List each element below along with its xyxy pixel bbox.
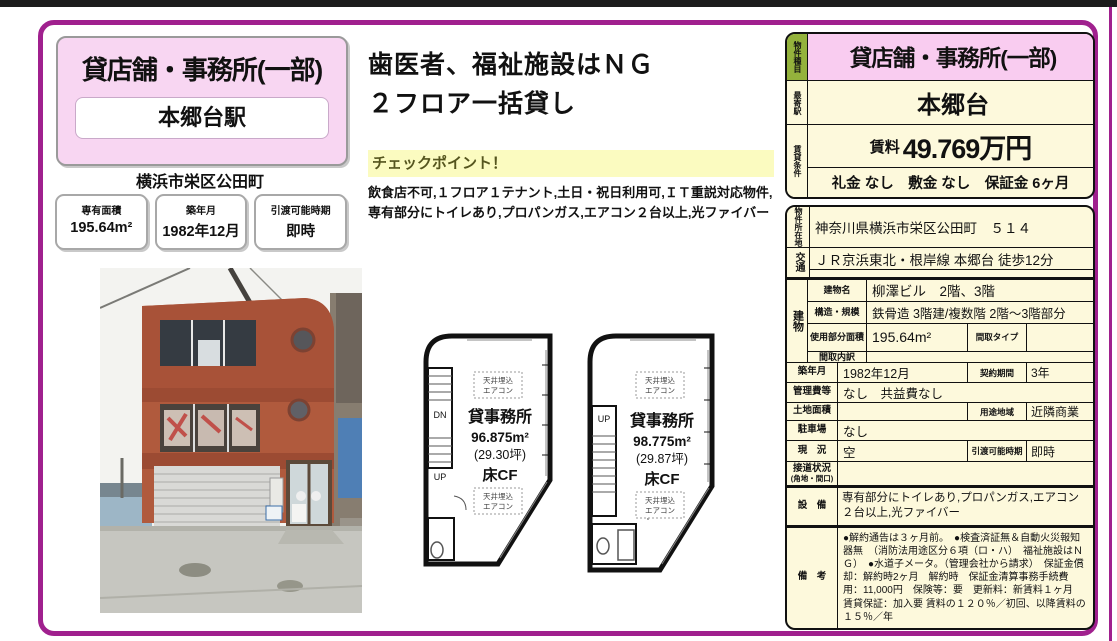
row-plan-detail: 間取内訳 bbox=[808, 351, 1093, 363]
rent-label: 賃料 bbox=[870, 136, 900, 157]
row-equipment: 設 備 専有部分にトイレあり,プロパンガス,エアコン２台以上,光ファイバー bbox=[787, 485, 1093, 525]
transport-value: ＪＲ京浜東北・根岸線 本郷台 徒歩12分 bbox=[810, 248, 1093, 270]
top-black-strip bbox=[0, 0, 1117, 7]
status-label: 現 況 bbox=[787, 441, 838, 461]
station-box: 本郷台駅 bbox=[75, 97, 329, 139]
summary-station-label: 最寄駅 bbox=[787, 81, 808, 124]
notes-label: 備 考 bbox=[787, 528, 838, 628]
row-area: 使用部分面積 195.64m² 間取タイプ bbox=[808, 323, 1093, 351]
land-value bbox=[838, 403, 967, 420]
plan-type-value bbox=[1027, 324, 1093, 351]
aircon-top-line2: エアコン bbox=[483, 386, 513, 395]
address-line: 横浜市栄区公田町 bbox=[56, 168, 344, 192]
aircon-bottom-line1: 天井埋込 bbox=[645, 495, 675, 505]
mgmt-value: なし 共益費なし bbox=[838, 383, 1093, 402]
stair-label-top: UP bbox=[598, 414, 611, 424]
area-value: 195.64m² bbox=[867, 324, 967, 351]
built-label: 築年月 bbox=[787, 363, 838, 382]
headline-line2: ２フロア一括貸し bbox=[368, 85, 778, 124]
row-structure: 構造・規模 鉄骨造 3階建/複数階 2階～3階部分 bbox=[808, 301, 1093, 323]
summary-table: 物件種目 貸店舗・事務所(一部) 最寄駅 本郷台 賃貸条件 賃料 49.769万… bbox=[785, 32, 1095, 199]
headline-line1: 歯医者、福祉施設はＮＧ bbox=[368, 46, 778, 85]
stat-built: 築年月 1982年12月 bbox=[155, 194, 248, 250]
plan-detail-label: 間取内訳 bbox=[808, 352, 867, 363]
parking-label: 駐車場 bbox=[787, 421, 838, 440]
stat-area-label: 専有面積 bbox=[57, 202, 146, 217]
stat-handover-label: 引渡可能時期 bbox=[256, 202, 345, 217]
plan-use: 貸事務所 bbox=[467, 407, 532, 426]
transport-label: 交通 bbox=[787, 248, 810, 277]
right-purple-line bbox=[1109, 7, 1112, 641]
aircon-bottom-line2: エアコン bbox=[483, 502, 513, 511]
stat-handover: 引渡可能時期 即時 bbox=[254, 194, 347, 250]
building-name-label: 建物名 bbox=[808, 280, 867, 301]
zoning-value: 近隣商業 bbox=[1027, 403, 1093, 420]
summary-row-station: 最寄駅 本郷台 bbox=[787, 80, 1093, 124]
stair-label-bottom: UP bbox=[434, 472, 447, 482]
flyer-page: 貸店舗・事務所(一部) 本郷台駅 横浜市栄区公田町 専有面積 195.64m² … bbox=[0, 0, 1117, 641]
aircon-bottom-line2: エアコン bbox=[645, 506, 675, 515]
plan-floor: 床CF bbox=[645, 470, 680, 488]
handover-label: 引渡可能時期 bbox=[967, 441, 1027, 461]
mgmt-label: 管理費等 bbox=[787, 383, 838, 402]
summary-row-terms: 賃貸条件 賃料 49.769万円 礼金 なし 敷金 なし 保証金 6ヶ月 bbox=[787, 124, 1093, 197]
checkpoint-title: チェックポイント！ bbox=[368, 150, 774, 177]
handover-value: 即時 bbox=[1027, 441, 1093, 461]
stat-area: 専有面積 195.64m² bbox=[55, 194, 148, 250]
summary-station-value: 本郷台 bbox=[808, 81, 1093, 124]
category-box: 貸店舗・事務所(一部) 本郷台駅 bbox=[56, 36, 348, 166]
row-transport: 交通 ＪＲ京浜東北・根岸線 本郷台 徒歩12分 bbox=[787, 247, 1093, 277]
detail-table: 物件所在地 神奈川県横浜市栄区公田町 ５１４ 交通 ＪＲ京浜東北・根岸線 本郷台… bbox=[785, 205, 1095, 630]
row-land: 土地面積 用途地域 近隣商業 bbox=[787, 402, 1093, 420]
status-value: 空 bbox=[838, 441, 967, 461]
zoning-label: 用途地域 bbox=[967, 403, 1027, 420]
row-mgmt: 管理費等 なし 共益費なし bbox=[787, 382, 1093, 402]
plan-type-label: 間取タイプ bbox=[967, 324, 1027, 351]
floorplan-2f: DN UP 天井埋込 エアコン 天井埋込 エアコン 貸事務所 96.875m² … bbox=[412, 310, 566, 576]
building-label: 建物 bbox=[787, 280, 808, 363]
location-value: 神奈川県横浜市栄区公田町 ５１４ bbox=[810, 207, 1093, 247]
plan-floor: 床CF bbox=[483, 466, 518, 484]
structure-value: 鉄骨造 3階建/複数階 2階～3階部分 bbox=[867, 302, 1093, 323]
floorplan-3f: UP 天井埋込 エアコン 天井埋込 エアコン 貸事務所 98.775m² (29… bbox=[578, 310, 728, 582]
road-value bbox=[838, 462, 1093, 484]
contract-label: 契約期間 bbox=[967, 363, 1027, 382]
area-label: 使用部分面積 bbox=[808, 324, 867, 351]
land-label: 土地面積 bbox=[787, 403, 838, 420]
plan-tsubo: (29.87坪) bbox=[636, 452, 688, 466]
stat-boxes: 専有面積 195.64m² 築年月 1982年12月 引渡可能時期 即時 bbox=[55, 194, 347, 250]
location-label: 物件所在地 bbox=[787, 207, 810, 247]
rent-value: 49.769万円 bbox=[903, 127, 1032, 166]
building-name-value: 柳澤ビル 2階、3階 bbox=[867, 280, 1093, 301]
rent-row: 賃料 49.769万円 bbox=[808, 125, 1093, 168]
row-road: 接道状況 (角地・間口) bbox=[787, 461, 1093, 484]
headline: 歯医者、福祉施設はＮＧ ２フロア一括貸し bbox=[368, 46, 778, 124]
road-label: 接道状況 (角地・間口) bbox=[787, 462, 838, 484]
transport-value2 bbox=[810, 270, 1093, 277]
aircon-top-line1: 天井埋込 bbox=[483, 375, 513, 385]
equipment-value: 専有部分にトイレあり,プロパンガス,エアコン２台以上,光ファイバー bbox=[838, 488, 1093, 525]
aircon-top-line1: 天井埋込 bbox=[645, 375, 675, 385]
category-title: 貸店舗・事務所(一部) bbox=[58, 50, 346, 87]
row-parking: 駐車場 なし bbox=[787, 420, 1093, 440]
summary-terms-label: 賃貸条件 bbox=[787, 125, 808, 197]
row-notes: 備 考 ●解約通告は３ヶ月前。 ●検査済証無＆自動火災報知器無 （消防法用途区分… bbox=[787, 525, 1093, 628]
aircon-bottom-line1: 天井埋込 bbox=[483, 491, 513, 501]
stat-built-label: 築年月 bbox=[157, 202, 246, 217]
plan-area: 96.875m² bbox=[471, 430, 529, 445]
summary-type-label: 物件種目 bbox=[787, 34, 808, 80]
summary-row-type: 物件種目 貸店舗・事務所(一部) bbox=[787, 34, 1093, 80]
row-location: 物件所在地 神奈川県横浜市栄区公田町 ５１４ bbox=[787, 207, 1093, 247]
plan-area: 98.775m² bbox=[633, 434, 691, 449]
building-photo bbox=[100, 268, 362, 613]
summary-type-value: 貸店舗・事務所(一部) bbox=[808, 34, 1093, 80]
row-built: 築年月 1982年12月 契約期間 3年 bbox=[787, 362, 1093, 382]
road-label-sub: (角地・間口) bbox=[791, 475, 834, 484]
row-building-name: 建物名 柳澤ビル 2階、3階 bbox=[808, 280, 1093, 301]
stat-area-value: 195.64m² bbox=[57, 220, 146, 236]
built-value: 1982年12月 bbox=[838, 363, 967, 382]
plan-detail-value bbox=[867, 352, 1093, 363]
fees-row: 礼金 なし 敷金 なし 保証金 6ヶ月 bbox=[808, 168, 1093, 197]
plan-use: 貸事務所 bbox=[629, 411, 694, 430]
stat-built-value: 1982年12月 bbox=[157, 220, 246, 241]
contract-value: 3年 bbox=[1027, 363, 1093, 382]
parking-value: なし bbox=[838, 421, 1093, 440]
aircon-top-line2: エアコン bbox=[645, 386, 675, 395]
stair-label-top: DN bbox=[434, 410, 447, 420]
structure-label: 構造・規模 bbox=[808, 302, 867, 323]
equipment-label: 設 備 bbox=[787, 488, 838, 525]
row-status: 現 況 空 引渡可能時期 即時 bbox=[787, 440, 1093, 461]
row-building: 建物 建物名 柳澤ビル 2階、3階 構造・規模 鉄骨造 3階建/複数階 2階～3… bbox=[787, 277, 1093, 363]
notes-value: ●解約通告は３ヶ月前。 ●検査済証無＆自動火災報知器無 （消防法用途区分６項（ロ… bbox=[838, 528, 1093, 628]
stat-handover-value: 即時 bbox=[256, 220, 345, 241]
plan-tsubo: (29.30坪) bbox=[474, 448, 526, 462]
checkpoint-body: 飲食店不可,１フロア１テナント,土日・祝日利用可,ＩＴ重説対応物件,専有部分にト… bbox=[368, 183, 780, 222]
